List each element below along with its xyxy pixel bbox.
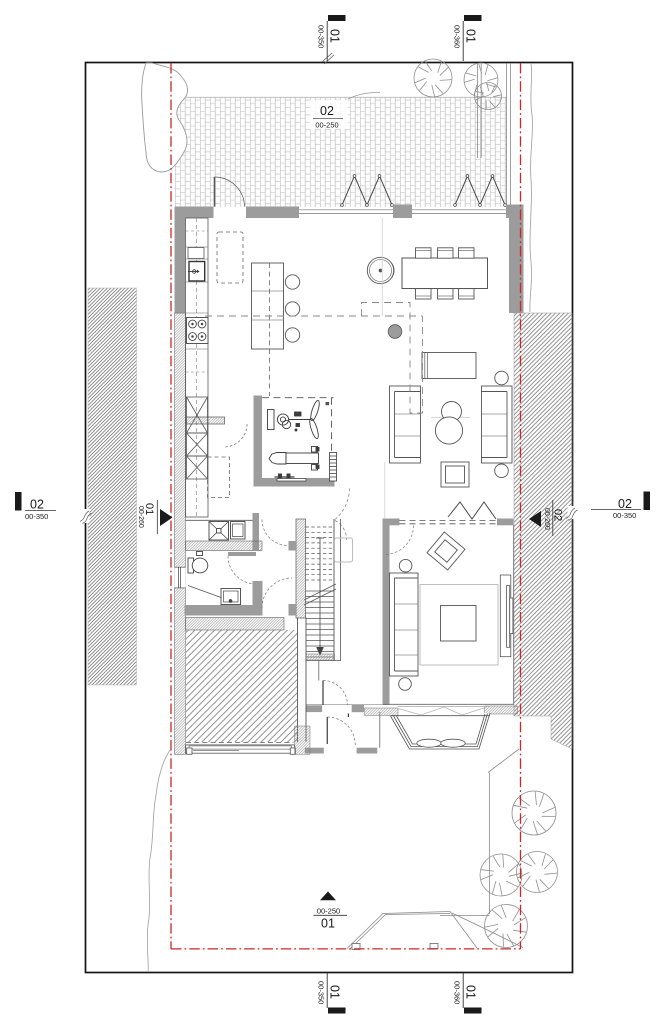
svg-text:00-350: 00-350 — [317, 981, 326, 1004]
svg-text:00-250: 00-250 — [317, 907, 340, 916]
svg-text:00-260: 00-260 — [137, 506, 144, 528]
svg-text:00-350: 00-350 — [317, 25, 326, 48]
svg-text:02: 02 — [320, 104, 334, 118]
svg-text:00-260: 00-260 — [543, 508, 550, 530]
svg-text:00-360: 00-360 — [453, 25, 462, 48]
svg-text:01: 01 — [328, 985, 342, 999]
svg-text:00-250: 00-250 — [315, 121, 338, 130]
svg-text:02: 02 — [618, 497, 632, 511]
svg-text:00-360: 00-360 — [453, 981, 462, 1004]
svg-text:02: 02 — [30, 498, 44, 512]
svg-text:01: 01 — [321, 917, 335, 931]
svg-text:01: 01 — [464, 29, 478, 43]
svg-text:00-350: 00-350 — [25, 512, 48, 521]
svg-text:01: 01 — [464, 985, 478, 999]
svg-text:01: 01 — [328, 29, 342, 43]
svg-text:02: 02 — [552, 509, 564, 521]
svg-text:00-350: 00-350 — [613, 511, 636, 520]
